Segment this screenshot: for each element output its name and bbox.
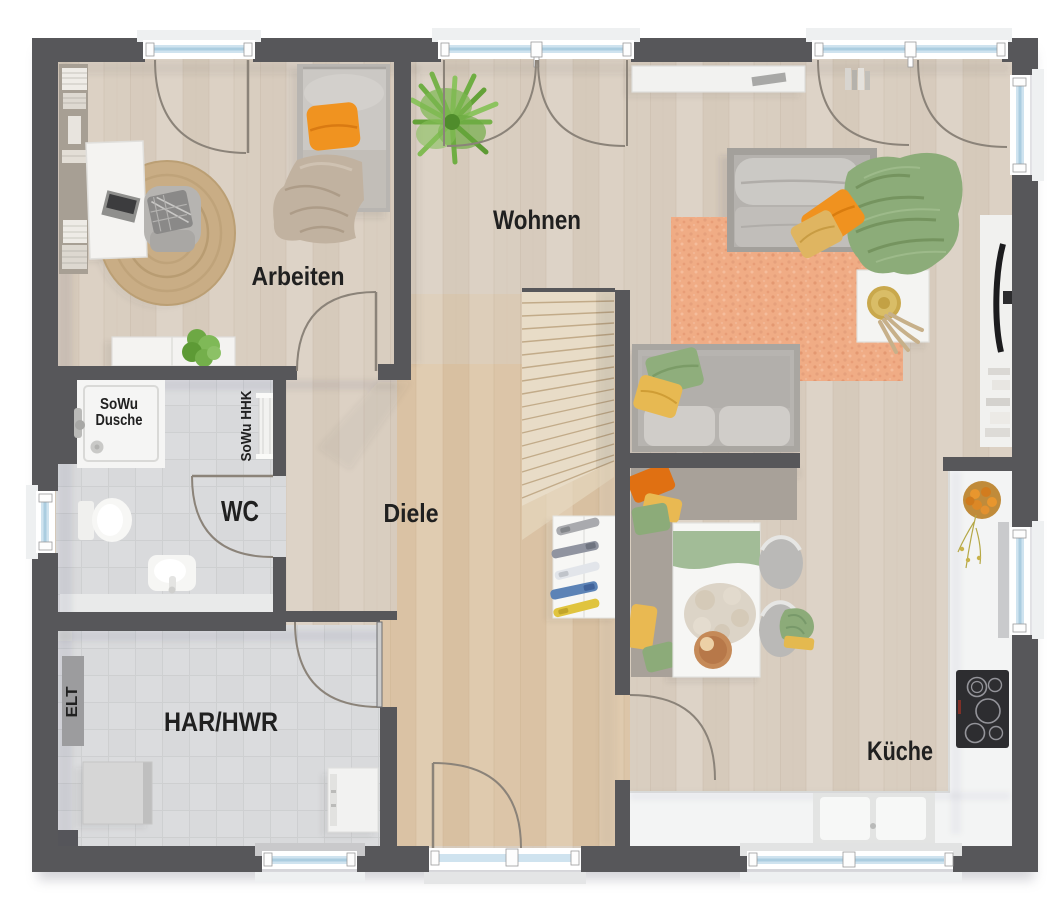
svg-text:Arbeiten: Arbeiten [252,261,345,291]
svg-text:WC: WC [221,496,259,528]
svg-text:Wohnen: Wohnen [493,205,581,235]
svg-text:Diele: Diele [384,498,439,528]
svg-text:ELT: ELT [64,686,81,718]
svg-text:SoWu: SoWu [100,396,138,413]
svg-text:Küche: Küche [867,736,933,766]
svg-text:Dusche: Dusche [96,412,143,429]
svg-text:HAR/HWR: HAR/HWR [164,707,278,737]
svg-text:SoWu HHK: SoWu HHK [239,390,255,461]
